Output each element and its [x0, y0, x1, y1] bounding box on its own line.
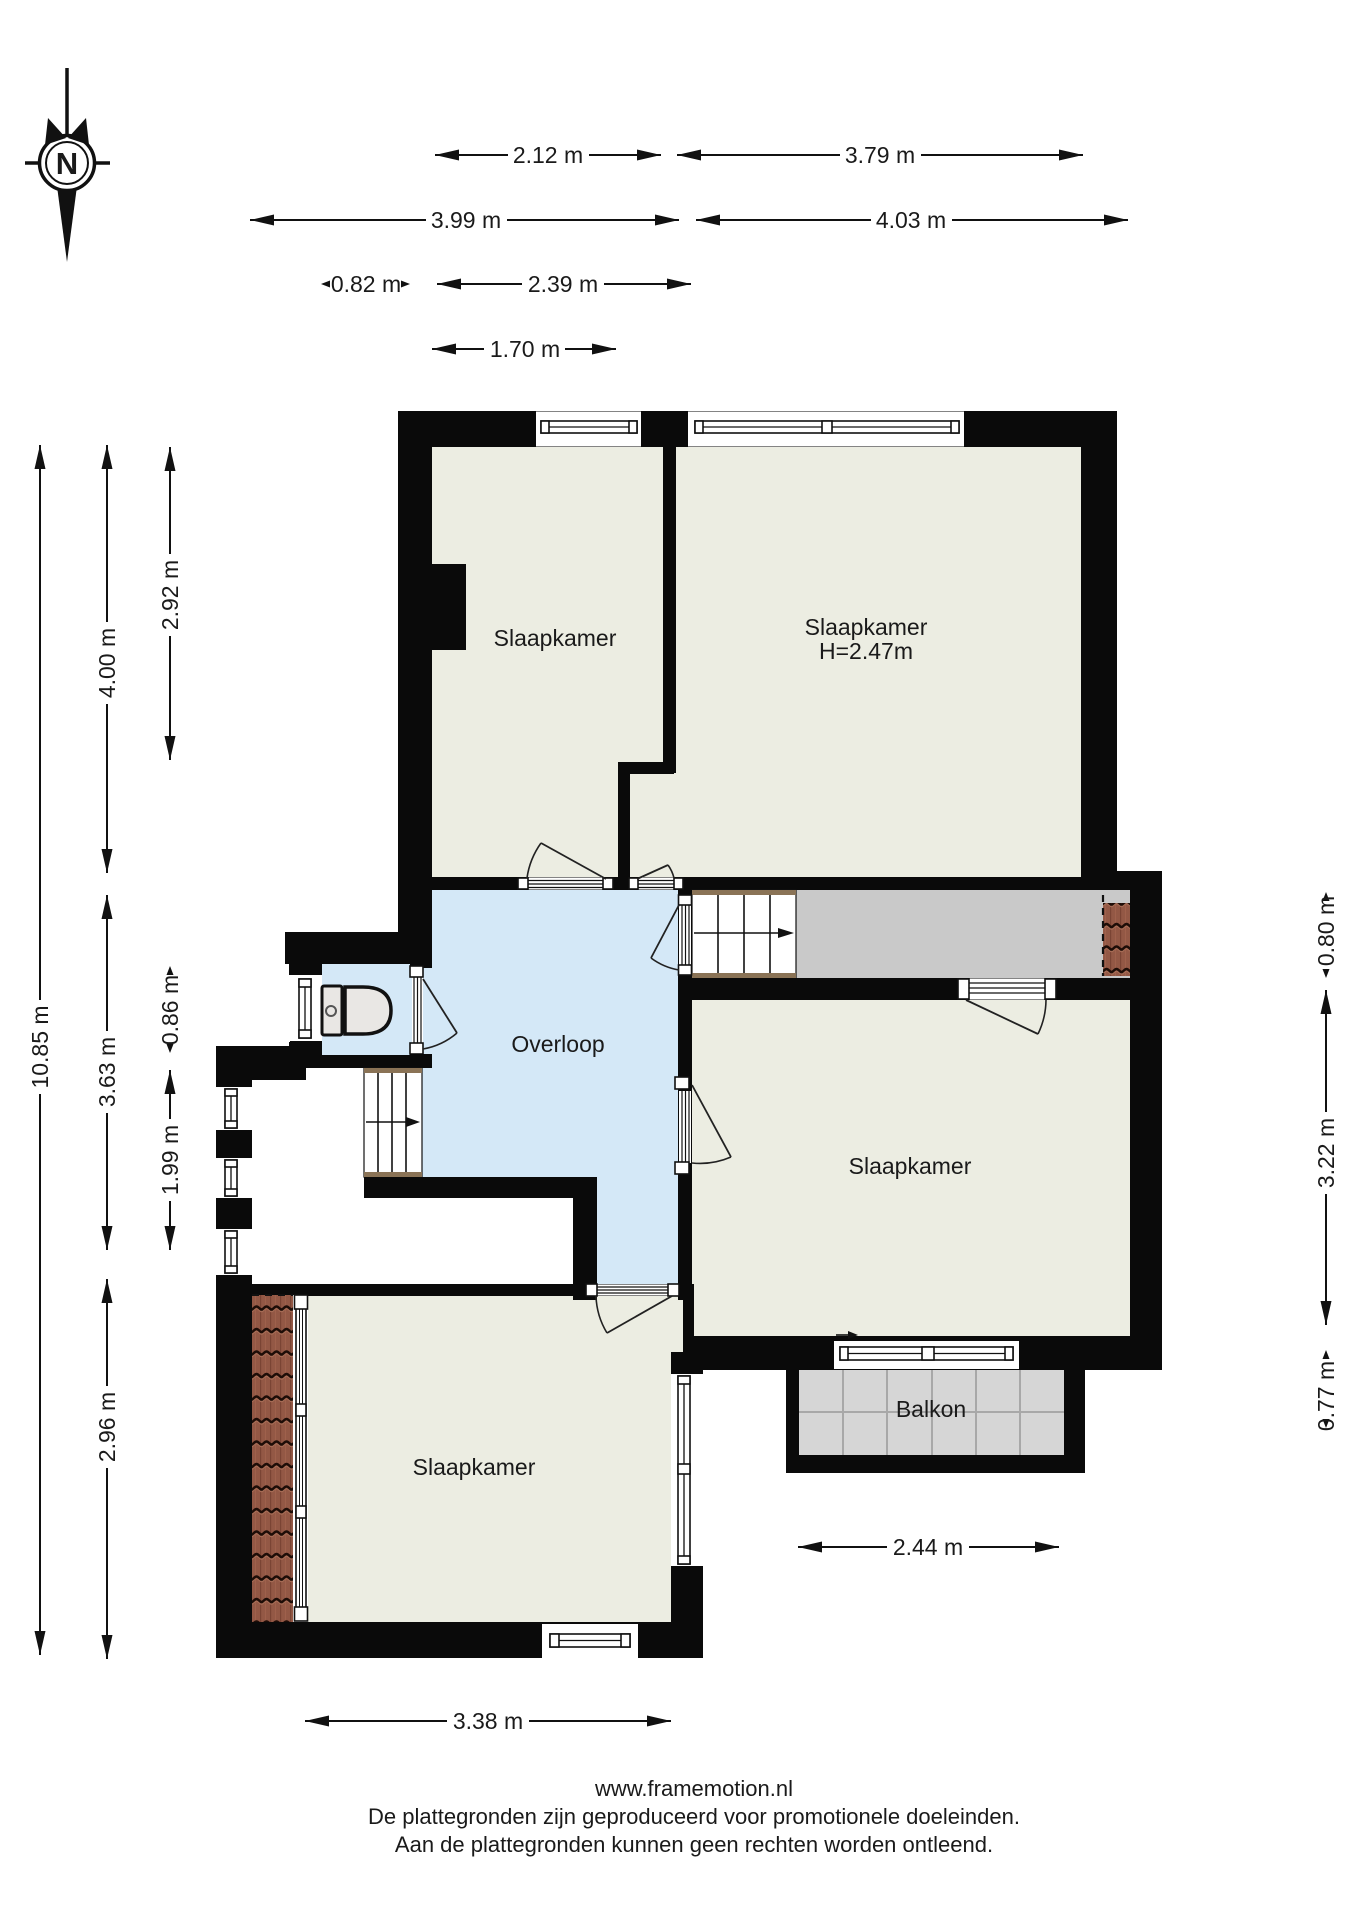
svg-text:2.12 m: 2.12 m: [513, 142, 583, 168]
svg-text:H=2.47m: H=2.47m: [819, 638, 913, 664]
svg-text:Balkon: Balkon: [896, 1396, 966, 1422]
svg-text:2.39 m: 2.39 m: [528, 271, 598, 297]
svg-text:N: N: [56, 146, 78, 181]
svg-text:3.63 m: 3.63 m: [94, 1037, 120, 1107]
svg-text:Slaapkamer: Slaapkamer: [413, 1454, 536, 1480]
svg-text:2.96 m: 2.96 m: [94, 1392, 120, 1462]
svg-text:Slaapkamer: Slaapkamer: [494, 625, 617, 651]
svg-text:3.99 m: 3.99 m: [431, 207, 501, 233]
svg-text:1.70 m: 1.70 m: [490, 336, 560, 362]
svg-text:0.82 m: 0.82 m: [331, 271, 401, 297]
svg-text:Slaapkamer: Slaapkamer: [805, 614, 928, 640]
svg-text:Slaapkamer: Slaapkamer: [849, 1153, 972, 1179]
svg-text:1.99 m: 1.99 m: [157, 1125, 183, 1195]
svg-text:3.38 m: 3.38 m: [453, 1708, 523, 1734]
svg-text:4.00 m: 4.00 m: [94, 628, 120, 698]
svg-text:2.92 m: 2.92 m: [157, 560, 183, 630]
svg-text:Overloop: Overloop: [511, 1031, 604, 1057]
svg-text:De plattegronden zijn geproduc: De plattegronden zijn geproduceerd voor …: [368, 1804, 1020, 1829]
svg-text:0.86 m: 0.86 m: [157, 975, 183, 1045]
svg-text:4.03 m: 4.03 m: [876, 207, 946, 233]
svg-text:10.85 m: 10.85 m: [27, 1005, 53, 1088]
svg-text:0.80 m: 0.80 m: [1313, 896, 1339, 966]
svg-text:2.44 m: 2.44 m: [893, 1534, 963, 1560]
svg-text:www.framemotion.nl: www.framemotion.nl: [594, 1776, 793, 1801]
svg-text:0.77 m: 0.77 m: [1313, 1361, 1339, 1431]
svg-text:3.22 m: 3.22 m: [1313, 1118, 1339, 1188]
svg-text:3.79 m: 3.79 m: [845, 142, 915, 168]
svg-text:Aan de plattegronden kunnen ge: Aan de plattegronden kunnen geen rechten…: [395, 1832, 993, 1857]
